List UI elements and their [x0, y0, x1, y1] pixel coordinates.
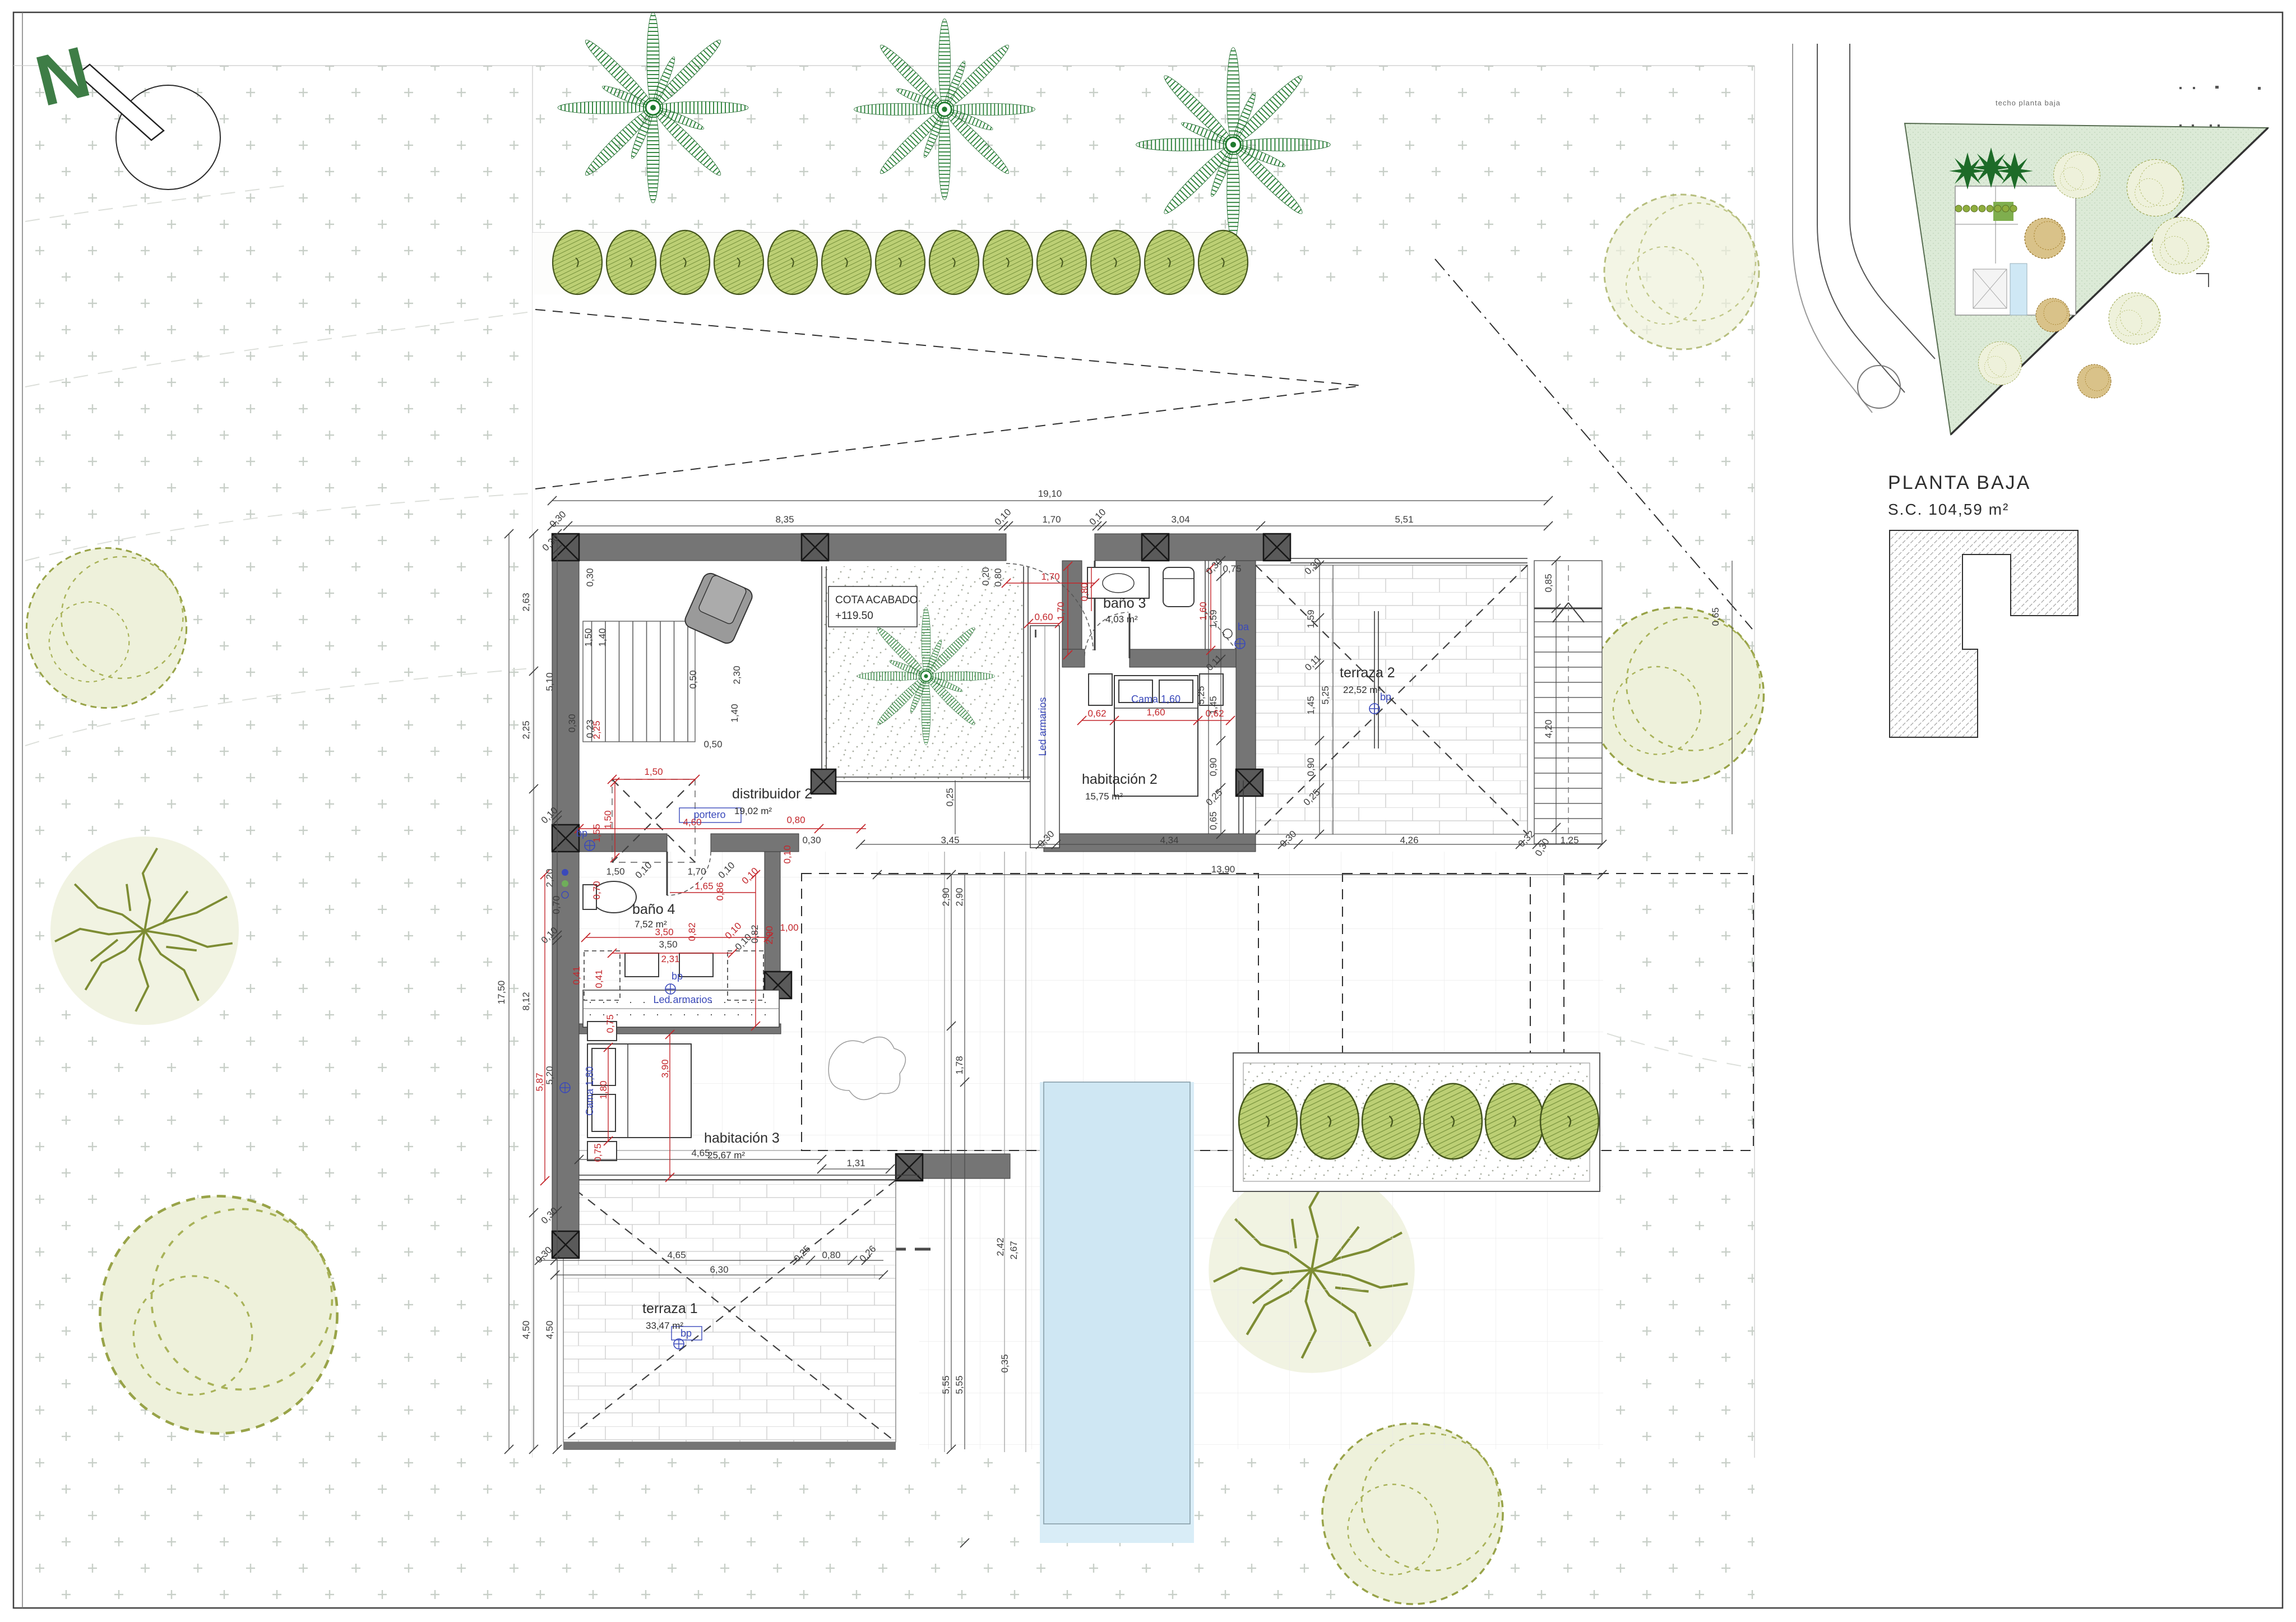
dimension-text: 2,42: [995, 1237, 1006, 1256]
dimension-text: 0,50: [703, 739, 722, 750]
inset-caption: techo planta baja: [1996, 99, 2061, 107]
dimension-text-red: 1,65: [695, 881, 713, 891]
dimension-text-red: 3,90: [660, 1059, 670, 1078]
dimension-text: 1,50: [583, 628, 594, 646]
dimension-text-red: 0,41: [594, 969, 604, 988]
dimension-text: 0,30: [567, 714, 577, 732]
annotation-label: ba: [1238, 621, 1249, 632]
dimension-text: 0,30: [802, 835, 821, 845]
dimension-text-red: 0,75: [592, 1143, 603, 1162]
dimension-text: 0,90: [1208, 757, 1219, 776]
terraza-2: [1256, 558, 1527, 834]
cota-value: +119.50: [835, 610, 873, 622]
dimension-text: 1,70: [687, 866, 706, 877]
dimension-text: 1,40: [729, 704, 740, 722]
annotation-label: Led armarios: [1037, 697, 1048, 756]
planter: [1233, 1053, 1600, 1191]
utility-marker-icon: [560, 1083, 570, 1093]
dimension-text-red: 2,25: [591, 720, 602, 739]
dimension-text: 0,25: [945, 788, 955, 806]
dimension-text: 1,31: [846, 1158, 865, 1168]
dimension-text-red: 0,62: [1087, 708, 1106, 719]
inset-corner-mark: [2196, 274, 2209, 287]
dimension-text: 5,55: [941, 1375, 951, 1394]
room-label: terraza 2: [1340, 665, 1395, 681]
dimension-text: 0,65: [1208, 811, 1219, 830]
dimension-text-red: 0,86: [715, 882, 725, 900]
room-label: 25,67 m²: [707, 1150, 745, 1161]
dimension-text-red: 1,70: [1056, 602, 1066, 620]
title-block: PLANTA BAJA S.C. 104,59 m²: [1888, 472, 2078, 737]
dimension-text-red: 0,60: [1034, 612, 1053, 622]
drawing-sheet: N: [0, 0, 2296, 1622]
dimension-text-red: 2,31: [661, 954, 679, 964]
patio-palm-icon: [858, 608, 995, 745]
page-title-area: S.C. 104,59 m²: [1888, 501, 2009, 518]
dimension-text: 2,20: [544, 868, 555, 887]
dimension-text: 1,45: [1306, 696, 1316, 714]
dimension-text: 6,30: [710, 1264, 728, 1275]
dimension-text: 1,78: [954, 1056, 965, 1074]
dimension-text: 1,70: [1042, 514, 1061, 525]
cota-acabado-box: COTA ACABADO +119.50: [828, 586, 918, 627]
utility-marker-icon: [674, 1339, 684, 1349]
dimension-text: 5,51: [1395, 514, 1413, 525]
dimension-text-red: 0,80: [1079, 583, 1090, 601]
dimension-text-red: 2,90: [764, 926, 775, 944]
dimension-text: 0,35: [999, 1354, 1010, 1373]
room-label: 7,52 m²: [635, 919, 667, 930]
dimension-text: 1,59: [1208, 609, 1219, 628]
dimension-text-red: 0,70: [591, 881, 602, 899]
dimension-text: 3,50: [659, 939, 677, 950]
dimension-text: 4,26: [1400, 835, 1418, 845]
dimension-text-red: 0,41: [571, 966, 582, 985]
annotation-label: Cama 1,80: [584, 1066, 595, 1116]
room-label: baño 3: [1103, 595, 1146, 611]
dimension-text: 0,70: [551, 895, 562, 914]
dimension-text: 2,30: [732, 666, 742, 684]
room-label: habitación 2: [1082, 771, 1158, 787]
dimension-text-red: 1,60: [1146, 707, 1165, 718]
annotation-label: bp: [1380, 691, 1391, 703]
annotation-label: Led armarios: [653, 994, 712, 1005]
dimension-text: 8,12: [521, 992, 531, 1010]
annotation-label: Cama 1,60: [1131, 694, 1181, 705]
room-label: habitación 3: [704, 1130, 780, 1146]
swimming-pool: [1040, 1082, 1194, 1543]
dimension-text: 0,50: [688, 670, 698, 688]
dimension-text: 13,90: [1211, 864, 1235, 875]
annotation-label: bp: [672, 971, 683, 982]
dimension-text-red: 0,62: [1205, 708, 1224, 719]
dimension-text: 5,10: [544, 672, 555, 691]
dimension-text-red: 1,50: [603, 810, 613, 829]
dimension-text: 4,34: [1160, 835, 1178, 845]
room-label: 19,02 m²: [734, 806, 772, 816]
dimension-text: 0,65: [1710, 607, 1721, 626]
page-title: PLANTA BAJA: [1888, 472, 2031, 493]
utility-marker-icon: [1369, 704, 1380, 714]
dimension-text: 4,50: [521, 1320, 531, 1339]
room-label: 4,03 m²: [1105, 614, 1138, 625]
annotation-label: portero: [693, 809, 725, 820]
dimension-text: 5,55: [954, 1375, 965, 1394]
dimension-text-red: 5,87: [534, 1073, 545, 1091]
cota-label: COTA ACABADO: [835, 594, 918, 606]
dimension-text: 2,90: [941, 888, 951, 906]
room-label: terraza 1: [642, 1301, 698, 1316]
dimension-text: 3,04: [1171, 514, 1189, 525]
dimension-text: 8,35: [775, 514, 794, 525]
dimension-text: 0,80: [822, 1250, 840, 1260]
floor-plan-drawing: N: [0, 0, 2296, 1622]
utility-marker-icon: [665, 984, 675, 994]
room-label: baño 4: [632, 902, 675, 917]
dimension-text-red: 1,70: [1041, 571, 1059, 582]
annotation-label: bp: [576, 828, 587, 839]
room-label: 15,75 m²: [1085, 791, 1123, 802]
dimension-text-red: 0,75: [605, 1014, 615, 1033]
dimension-text-red: 1,80: [598, 1080, 609, 1099]
exterior-stairs: [1534, 561, 1602, 844]
dimension-text: 1,50: [606, 866, 624, 877]
dimension-text: 0,75: [1223, 563, 1241, 574]
dimension-text-red: 1,55: [591, 824, 602, 842]
dimension-text-red: 1,00: [780, 922, 798, 933]
dimension-text: 19,10: [1038, 488, 1062, 499]
inset-road: [1793, 44, 1935, 413]
key-plan-diagram: [1890, 530, 2078, 737]
dimension-text-red: 0,80: [786, 815, 805, 825]
dimension-text: 17,50: [496, 981, 507, 1005]
room-label: distribuidor 2: [732, 786, 812, 802]
dimension-text: 2,67: [1008, 1241, 1019, 1259]
site-plan-inset: techo planta baja: [1793, 44, 2268, 435]
dimension-text-red: 1,60: [1198, 602, 1209, 620]
dimension-text: 0,80: [993, 568, 1003, 586]
dimension-text: 0,85: [1543, 574, 1554, 592]
dimension-text: 0,90: [1306, 757, 1316, 776]
room-label: 33,47 m²: [646, 1320, 683, 1331]
dimension-text: 2,90: [954, 888, 965, 906]
dimension-text: 2,25: [521, 720, 531, 739]
dimension-text: 5,25: [1320, 686, 1331, 704]
dimension-text: 2,63: [521, 593, 531, 611]
dimension-text: 3,45: [941, 835, 959, 845]
dimension-text: 0,30: [585, 568, 595, 586]
dimension-text: 4,65: [667, 1250, 686, 1260]
utility-marker-icon: [1235, 639, 1245, 649]
dimension-text-red: 0,82: [687, 922, 697, 941]
dimension-text: 1,40: [597, 628, 608, 646]
terraza-1: [563, 1180, 896, 1450]
tiny-text-marks: [2179, 86, 2261, 127]
dimension-text: 1,59: [1306, 609, 1316, 628]
dimension-text: 4,20: [1543, 719, 1554, 738]
dimension-text: 0,20: [980, 567, 991, 585]
dimension-text-red: 0,10: [782, 845, 793, 863]
dimension-text: 5,20: [544, 1066, 555, 1084]
dimension-text: 0,82: [749, 925, 760, 943]
dimension-text: 4,50: [544, 1320, 555, 1339]
dimension-text: 1,25: [1560, 835, 1578, 845]
room-label: 22,52 m²: [1343, 685, 1381, 695]
dimension-text-red: 1,50: [644, 766, 663, 777]
dimension-text: 5,25: [1196, 686, 1206, 704]
